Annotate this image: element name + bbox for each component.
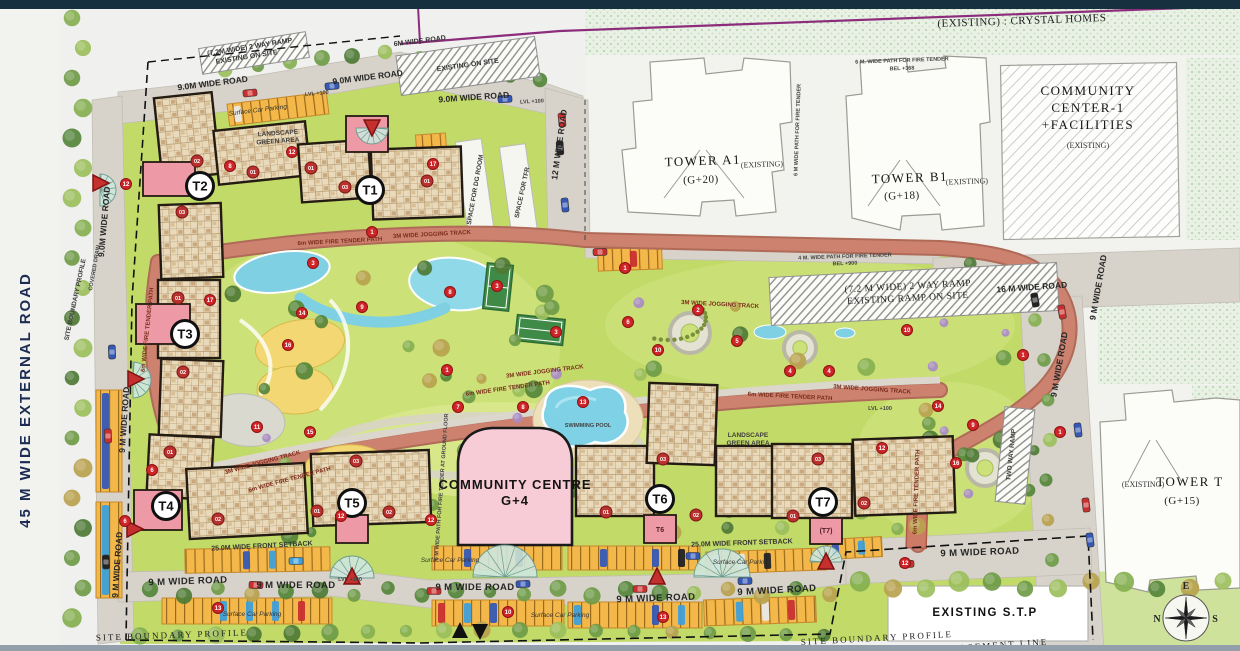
unit-badge-label: 01 bbox=[175, 296, 181, 302]
amenity-marker: 14 bbox=[297, 308, 308, 319]
tree bbox=[634, 368, 647, 381]
amenity-marker: 6 bbox=[147, 465, 158, 476]
tree bbox=[633, 297, 644, 308]
surface-parking-strip bbox=[185, 547, 330, 574]
unit-badge-label: 03 bbox=[342, 185, 348, 191]
tree bbox=[262, 434, 271, 443]
plan-label: Surface Car Parking bbox=[421, 557, 480, 564]
tree bbox=[315, 315, 328, 328]
plan-label: (G+20) bbox=[683, 173, 719, 186]
tree bbox=[1017, 581, 1033, 597]
unit-badge-label: 02 bbox=[215, 517, 221, 523]
tree bbox=[1042, 514, 1054, 526]
tree-highlight bbox=[178, 589, 187, 598]
tower-badge-label: T4 bbox=[158, 499, 174, 514]
tree bbox=[740, 626, 756, 642]
tree-highlight bbox=[940, 319, 945, 324]
tree-highlight bbox=[893, 524, 900, 531]
tree-highlight bbox=[65, 11, 74, 20]
tower-badge-label: T5 bbox=[344, 496, 359, 511]
flower-bed-dot bbox=[659, 337, 663, 341]
tower-wing-block bbox=[159, 203, 224, 279]
amenity-marker-number: 13 bbox=[580, 400, 587, 406]
tree bbox=[1028, 313, 1041, 326]
amenity-marker: 6 bbox=[120, 516, 131, 527]
parking-stalls bbox=[185, 547, 330, 574]
tree-highlight bbox=[346, 50, 355, 59]
tower-wing-block bbox=[311, 450, 431, 526]
tree-highlight bbox=[260, 384, 266, 390]
parked-car bbox=[652, 549, 659, 567]
plan-label: LANDSCAPE bbox=[728, 432, 769, 439]
plan-label: 9 M WIDE ROAD bbox=[435, 582, 514, 593]
site-plan-page: T1T2T3T4T5T6T702010301030101020102010302… bbox=[0, 0, 1240, 651]
tree bbox=[857, 358, 875, 376]
amenity-marker: 12 bbox=[287, 147, 298, 158]
tree bbox=[775, 521, 789, 535]
tree-highlight bbox=[349, 590, 356, 597]
car bbox=[289, 558, 303, 565]
tree bbox=[347, 589, 360, 602]
plan-label: BEL +900 bbox=[832, 261, 857, 268]
tree-highlight bbox=[546, 301, 554, 309]
tree bbox=[544, 300, 559, 315]
plan-label: BEL +368 bbox=[889, 66, 914, 73]
tree-highlight bbox=[705, 628, 712, 635]
amenity-marker: 5 bbox=[732, 336, 743, 347]
car bbox=[102, 555, 109, 569]
amenity-marker: 1 bbox=[620, 263, 631, 274]
amenity-marker: 4 bbox=[824, 366, 835, 377]
amenity-marker: 8 bbox=[445, 287, 456, 298]
unit-badge: 01 bbox=[311, 505, 323, 517]
flower-bed-dot bbox=[672, 337, 676, 341]
tree bbox=[75, 220, 92, 237]
tree bbox=[1215, 573, 1232, 590]
amenity-marker: 15 bbox=[305, 427, 316, 438]
tree-highlight bbox=[965, 259, 972, 266]
amenity-marker-number: 13 bbox=[660, 615, 667, 621]
amenity-marker: 12 bbox=[877, 443, 888, 454]
tree-highlight bbox=[316, 316, 323, 323]
unit-badge: 01 bbox=[164, 446, 176, 458]
parked-car bbox=[438, 603, 445, 623]
lobby-label: T6 bbox=[656, 527, 664, 534]
amenity-marker: 13 bbox=[658, 612, 669, 623]
parked-car bbox=[736, 602, 744, 622]
tree-highlight bbox=[923, 418, 931, 426]
pond bbox=[754, 325, 786, 339]
unit-badge: 02 bbox=[177, 366, 189, 378]
tree-highlight bbox=[77, 42, 86, 51]
unit-badge-label: 02 bbox=[194, 159, 200, 165]
unit-badge: 02 bbox=[191, 155, 203, 167]
tree bbox=[850, 571, 870, 591]
unit-badge: 01 bbox=[247, 166, 259, 178]
tree bbox=[512, 622, 528, 638]
tree-highlight bbox=[285, 627, 294, 636]
tree-highlight bbox=[1150, 582, 1159, 591]
parked-car bbox=[600, 549, 607, 567]
plan-label: LVL +100 bbox=[338, 577, 362, 583]
tower-wing-block bbox=[371, 146, 463, 219]
tree-highlight bbox=[65, 191, 75, 201]
tree-highlight bbox=[76, 401, 86, 411]
amenity-marker-number: 12 bbox=[123, 182, 130, 188]
flower-bed-dot bbox=[699, 326, 703, 330]
tree bbox=[517, 587, 531, 601]
tree-highlight bbox=[510, 335, 517, 342]
tree-highlight bbox=[551, 582, 560, 591]
tree bbox=[1149, 581, 1166, 598]
tree-highlight bbox=[513, 414, 519, 420]
parked-car bbox=[243, 551, 250, 569]
flower-bed-dot bbox=[665, 338, 669, 342]
plan-label: SWIMMING POOL bbox=[565, 423, 612, 429]
amenity-marker-number: 16 bbox=[285, 343, 292, 349]
tree-highlight bbox=[66, 252, 74, 260]
parked-car bbox=[102, 505, 109, 595]
tree bbox=[246, 627, 261, 642]
tree bbox=[65, 431, 80, 446]
plan-label: LVL +100 bbox=[868, 406, 892, 412]
tower-badge-label: T1 bbox=[362, 183, 377, 198]
plan-label: (EXISTING) bbox=[741, 159, 784, 169]
tree-highlight bbox=[66, 552, 75, 561]
car-windshield bbox=[109, 349, 114, 354]
tree-highlight bbox=[1046, 554, 1054, 562]
tree bbox=[891, 523, 903, 535]
tree-highlight bbox=[1039, 355, 1046, 362]
amenity-marker: 3 bbox=[551, 327, 562, 338]
amenity-marker: 8 bbox=[225, 161, 236, 172]
plan-label: (EXISTING) bbox=[1067, 141, 1110, 150]
tree bbox=[259, 383, 270, 394]
amenity-marker: 17 bbox=[205, 295, 216, 306]
tree bbox=[922, 417, 936, 431]
tree-highlight bbox=[401, 626, 408, 633]
tree bbox=[64, 10, 81, 27]
plan-label: TOWER T bbox=[1156, 474, 1223, 489]
tree bbox=[74, 399, 92, 417]
tree bbox=[381, 581, 394, 594]
tree bbox=[321, 624, 338, 641]
tree-highlight bbox=[76, 581, 85, 590]
tower-b1-footprint bbox=[846, 56, 990, 230]
tree bbox=[822, 587, 838, 603]
unit-badge-label: 01 bbox=[603, 510, 609, 516]
tower-badge-label: T7 bbox=[815, 495, 830, 510]
car-windshield bbox=[294, 558, 299, 563]
tree bbox=[1049, 579, 1067, 597]
plan-label: LVL +100 bbox=[520, 98, 544, 105]
tree bbox=[983, 572, 1001, 590]
tower-wing-block bbox=[186, 463, 308, 539]
tree bbox=[436, 622, 452, 638]
tree-highlight bbox=[246, 588, 254, 596]
amenity-marker: 10 bbox=[902, 325, 913, 336]
tree bbox=[64, 70, 80, 86]
tree bbox=[400, 625, 412, 637]
tree-highlight bbox=[852, 573, 863, 584]
tree bbox=[432, 339, 450, 357]
tree bbox=[284, 625, 301, 642]
tree bbox=[225, 286, 242, 303]
tree-highlight bbox=[985, 574, 995, 584]
amenity-marker: 9 bbox=[968, 420, 979, 431]
tree-highlight bbox=[416, 590, 424, 598]
tree bbox=[62, 608, 81, 627]
compass-letter: S bbox=[1212, 614, 1218, 625]
tree-highlight bbox=[629, 626, 636, 633]
tree bbox=[176, 588, 192, 604]
tree-highlight bbox=[635, 370, 642, 377]
tree-highlight bbox=[66, 432, 74, 440]
tree-highlight bbox=[1002, 330, 1006, 334]
unit-badge-label: 01 bbox=[790, 514, 796, 520]
tower-badge-T6: T6 bbox=[647, 486, 674, 513]
amenity-marker-number: 17 bbox=[430, 162, 437, 168]
tower-badge-T7: T7 bbox=[810, 489, 837, 516]
unit-badge-label: 03 bbox=[179, 210, 185, 216]
tree bbox=[1037, 353, 1051, 367]
flower-bed-dot bbox=[704, 315, 708, 319]
amenity-marker: 12 bbox=[121, 179, 132, 190]
tree-highlight bbox=[75, 340, 85, 350]
amenity-marker: 14 bbox=[933, 401, 944, 412]
tree-highlight bbox=[76, 161, 86, 171]
tree-highlight bbox=[316, 52, 325, 61]
amenity-marker: 12 bbox=[336, 511, 347, 522]
plan-label: COMMUNITY CENTRE bbox=[439, 477, 592, 492]
parked-car bbox=[298, 601, 305, 621]
tree-highlight bbox=[297, 364, 307, 374]
car bbox=[738, 577, 752, 584]
tower-wing bbox=[186, 463, 308, 539]
tree-highlight bbox=[76, 101, 86, 111]
plan-label: TOWER A1 bbox=[664, 152, 741, 170]
car bbox=[1074, 423, 1083, 438]
lobby-label: (T7) bbox=[820, 528, 833, 535]
amenity-marker: 6 bbox=[623, 317, 634, 328]
flower-bed-dot bbox=[703, 319, 707, 323]
tree-highlight bbox=[64, 610, 75, 621]
tree bbox=[417, 261, 432, 276]
plan-label: (G+15) bbox=[1164, 495, 1199, 507]
amenity-marker: 3 bbox=[308, 258, 319, 269]
tree-highlight bbox=[404, 342, 411, 349]
tree-highlight bbox=[997, 352, 1005, 360]
tree bbox=[64, 550, 80, 566]
tower-badge-T4: T4 bbox=[153, 493, 180, 520]
car-windshield bbox=[638, 586, 643, 591]
tower-wing bbox=[159, 203, 224, 279]
tree-highlight bbox=[263, 434, 268, 439]
amenity-marker-number: 12 bbox=[879, 446, 886, 452]
unit-badge: 03 bbox=[339, 181, 351, 193]
tree-highlight bbox=[723, 523, 730, 530]
car-windshield bbox=[520, 581, 525, 586]
tree-highlight bbox=[357, 272, 365, 280]
unit-badge-label: 03 bbox=[815, 457, 821, 463]
tree-highlight bbox=[383, 583, 390, 590]
flower-bed-dot bbox=[691, 332, 695, 336]
tree-highlight bbox=[1216, 574, 1225, 583]
tower-badge-T3: T3 bbox=[172, 321, 199, 348]
tree-highlight bbox=[1043, 515, 1050, 522]
parked-car bbox=[269, 551, 276, 569]
tree-highlight bbox=[323, 626, 332, 635]
amenity-marker-number: 12 bbox=[338, 514, 345, 520]
tree bbox=[583, 587, 600, 604]
tree bbox=[940, 426, 949, 435]
car-windshield bbox=[1032, 297, 1038, 303]
unit-badge: 01 bbox=[787, 510, 799, 522]
tower-badge-label: T3 bbox=[177, 327, 192, 342]
car bbox=[108, 345, 115, 359]
tree-highlight bbox=[1044, 434, 1052, 442]
tree bbox=[64, 250, 79, 265]
tree bbox=[1043, 433, 1057, 447]
tree-highlight bbox=[824, 588, 833, 597]
car-windshield bbox=[247, 90, 253, 96]
tree-highlight bbox=[496, 259, 505, 268]
tree bbox=[964, 489, 974, 499]
amenity-marker: 10 bbox=[653, 345, 664, 356]
tree-highlight bbox=[434, 341, 444, 351]
unit-badge-label: 01 bbox=[424, 179, 430, 185]
tree-highlight bbox=[791, 354, 800, 363]
amenity-marker-number: 15 bbox=[307, 430, 314, 436]
tower-wing bbox=[159, 359, 224, 437]
tree-highlight bbox=[585, 589, 594, 598]
flower-bed-dot bbox=[702, 323, 706, 327]
car bbox=[1086, 533, 1095, 548]
car bbox=[633, 586, 647, 593]
tree bbox=[1045, 553, 1059, 567]
tree bbox=[403, 340, 415, 352]
amenity-marker: 12 bbox=[900, 558, 911, 569]
tree bbox=[494, 257, 511, 274]
top-frame-bar bbox=[0, 0, 1240, 9]
parked-car bbox=[678, 549, 685, 567]
tree-highlight bbox=[1084, 574, 1093, 583]
unit-badge: 03 bbox=[176, 206, 188, 218]
tree-highlight bbox=[1116, 574, 1127, 585]
tree-highlight bbox=[64, 130, 74, 140]
tree-highlight bbox=[967, 450, 975, 458]
amenity-marker-number: 11 bbox=[254, 425, 261, 431]
flower-bed-dot bbox=[695, 330, 699, 334]
tree-highlight bbox=[941, 427, 946, 432]
tree bbox=[64, 490, 81, 507]
plan-label: (EXISTING) bbox=[946, 176, 989, 186]
compass-letter: E bbox=[1183, 581, 1190, 592]
tree bbox=[378, 45, 392, 59]
plan-label: GREEN AREA bbox=[726, 440, 769, 447]
tree bbox=[344, 48, 360, 64]
car-windshield bbox=[105, 433, 110, 438]
amenity-marker: 17 bbox=[428, 159, 439, 170]
tree bbox=[74, 99, 93, 118]
tower-wing bbox=[647, 383, 718, 465]
plan-label: 9 M WIDE ROAD bbox=[256, 580, 335, 591]
amenity-marker: 8 bbox=[518, 402, 529, 413]
tree bbox=[919, 403, 934, 418]
tree bbox=[63, 129, 82, 148]
tower-badge-label: T2 bbox=[192, 179, 207, 194]
car bbox=[243, 89, 258, 97]
tree-highlight bbox=[76, 221, 85, 230]
green-texture-patch bbox=[1186, 58, 1240, 240]
tree bbox=[928, 361, 938, 371]
amenity-marker-number: 12 bbox=[428, 518, 435, 524]
tree bbox=[74, 339, 93, 358]
parked-car bbox=[788, 600, 796, 620]
plan-label: EXISTING S.T.P bbox=[932, 607, 1037, 619]
tree bbox=[512, 413, 522, 423]
car-windshield bbox=[562, 202, 568, 208]
tree-highlight bbox=[647, 362, 656, 371]
amenity-marker-number: 16 bbox=[953, 461, 960, 467]
tree-highlight bbox=[65, 491, 74, 500]
tree-highlight bbox=[920, 404, 928, 412]
parked-car bbox=[630, 251, 638, 267]
surface-parking-strip bbox=[568, 546, 700, 570]
amenity-marker-number: 12 bbox=[902, 561, 909, 567]
amenity-marker: 3 bbox=[492, 281, 503, 292]
unit-badge-label: 02 bbox=[693, 513, 699, 519]
tree-highlight bbox=[1051, 581, 1061, 591]
tree bbox=[996, 350, 1011, 365]
tree bbox=[721, 522, 733, 534]
unit-badge: 03 bbox=[657, 453, 669, 465]
tree-highlight bbox=[551, 623, 560, 632]
tree bbox=[314, 50, 330, 66]
plan-label: +FACILITIES bbox=[1042, 117, 1134, 132]
unit-badge: 01 bbox=[600, 506, 612, 518]
amenity-marker: 1 bbox=[442, 365, 453, 376]
compass-letter: N bbox=[1153, 614, 1161, 625]
unit-badge-label: 03 bbox=[660, 457, 666, 463]
amenity-marker-number: 10 bbox=[904, 328, 911, 334]
unit-badge: 01 bbox=[172, 292, 184, 304]
tower-badge-T2: T2 bbox=[187, 173, 214, 200]
tree bbox=[361, 625, 375, 639]
tree bbox=[721, 582, 736, 597]
parked-car bbox=[678, 605, 685, 625]
car-windshield bbox=[103, 559, 108, 564]
plan-label: Surface Car Parking bbox=[531, 612, 590, 619]
parked-car bbox=[464, 603, 471, 623]
flower-bed-dot bbox=[652, 336, 656, 340]
tree bbox=[74, 459, 93, 478]
unit-badge-label: 03 bbox=[353, 459, 359, 465]
amenity-marker: 7 bbox=[453, 402, 464, 413]
flower-bed-dot bbox=[685, 335, 689, 339]
flower-bed-dot bbox=[679, 336, 683, 340]
tree bbox=[550, 622, 567, 639]
tree bbox=[949, 571, 970, 592]
bottom-frame-bar bbox=[0, 645, 1240, 651]
tree-highlight bbox=[538, 287, 548, 297]
car-windshield bbox=[691, 553, 696, 558]
tree-highlight bbox=[248, 628, 256, 636]
tower-wing-block bbox=[159, 359, 224, 437]
tree bbox=[917, 579, 935, 597]
unit-badge: 02 bbox=[383, 506, 395, 518]
parked-car bbox=[490, 603, 497, 623]
